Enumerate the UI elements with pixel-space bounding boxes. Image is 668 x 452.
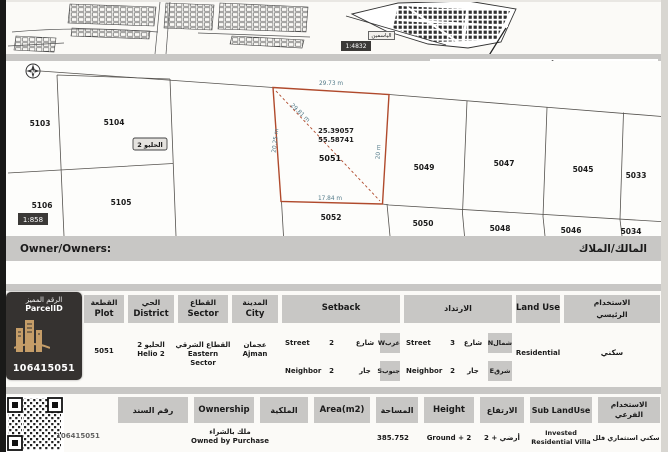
owner-label-en: Owner/Owners: xyxy=(20,243,111,255)
plot-label: 5046 xyxy=(561,226,582,235)
plot-demarcation-document: الياسمين 1:4832 موقع الأرض / Plot Demarc… xyxy=(0,0,668,452)
stamp-header-ar: الرقم المميز xyxy=(6,296,82,304)
stamp-header-en: ParcelID xyxy=(6,304,82,313)
landuse-value: Residential xyxy=(510,349,566,358)
table1-top-band xyxy=(6,284,661,291)
ownership-value-ar: ملك بالشراء xyxy=(140,428,320,437)
setback-e-neighbor-label: Neighbor xyxy=(406,361,446,381)
setback-w-neighbor-dir: جنوبS xyxy=(380,361,400,381)
subuse-header-ar-line1: الاستخدام xyxy=(611,400,647,410)
setback-e-street-ar: شارع xyxy=(461,333,485,353)
height-value-en: Ground + 2 xyxy=(424,434,474,443)
subuse-value-ar: سكني استثماري فلل xyxy=(586,434,666,443)
setback-w-street-dir: غربW xyxy=(380,333,400,353)
plot-label: 5034 xyxy=(621,227,642,236)
parcel-id-stamp: الرقم المميز ParcelID 106415051 xyxy=(6,292,82,380)
col-city-header: المدينة City xyxy=(232,295,278,323)
col-deed-header: رقم السند xyxy=(118,397,188,423)
setback-w-neighbor-ar: جار xyxy=(352,361,378,381)
ownership-value: ملك بالشراء Owned by Purchase xyxy=(140,428,320,446)
plot-label: 5104 xyxy=(104,118,125,127)
col-area-header-en: Area(m2) xyxy=(314,397,370,423)
setback-w-street-label: Street xyxy=(285,333,325,353)
survey-drawing: N 29.73 m 29.81 m 20.25 m 20 m 17.84 m 2… xyxy=(0,61,668,236)
dim-diagonal: 29.81 m xyxy=(289,103,311,124)
district-value-ar: الحليو 2 xyxy=(128,341,174,350)
landuse-value-text: Residential xyxy=(510,349,566,358)
setback-e-neighbor-value: 2 xyxy=(446,361,459,381)
setback-w-street-value: 2 xyxy=(325,333,338,353)
subuse-value-en-line2: Residential Villa xyxy=(530,438,592,447)
survey-scale-chip: 1:858 xyxy=(18,213,48,225)
survey-scale-label: 1:858 xyxy=(23,216,43,224)
setback-e-street-label: Street xyxy=(406,333,446,353)
building-blocks xyxy=(14,3,308,52)
longitude-label: 55.58741 xyxy=(318,136,354,144)
street-map-drawing xyxy=(8,2,328,54)
height-value-ar-text: أرضي + 2 xyxy=(480,434,524,443)
dim-right: 20 m xyxy=(375,144,382,160)
sector-header-en: Sector xyxy=(178,309,228,320)
scan-edge-left xyxy=(0,0,6,452)
plot-header-ar: القطعة xyxy=(84,297,124,309)
col-district-header: الحي District xyxy=(128,295,174,323)
plot-label: 5052 xyxy=(321,213,342,222)
subuse-value-en-line1: Invested xyxy=(530,429,592,438)
subuse-header-ar-line2: الفرعي xyxy=(615,410,643,420)
sector-value-ar: القطاع الشرقي xyxy=(174,341,232,350)
height-value-ar: أرضي + 2 xyxy=(480,434,524,443)
dim-bottom: 17.84 m xyxy=(318,196,342,202)
district-chip: الحليو 2 xyxy=(133,138,167,150)
plot-label: 5049 xyxy=(414,163,435,172)
ownership-value-en: Owned by Purchase xyxy=(140,437,320,446)
plot-value: 5051 xyxy=(84,347,124,356)
north-arrow-icon: N xyxy=(26,64,40,78)
col-area-header-ar: المساحة xyxy=(376,397,418,423)
plot-label: 5106 xyxy=(32,201,53,210)
sector-header-ar: القطاع xyxy=(178,297,228,309)
setback-header-label: Setback xyxy=(282,297,400,320)
district-value: الحليو 2 Helio 2 xyxy=(128,341,174,359)
owner-blank-row xyxy=(6,261,661,284)
mainuse-value: سكني xyxy=(564,348,660,357)
city-value-en: Ajman xyxy=(232,350,278,359)
col-subuse-header-en: Sub LandUse xyxy=(530,397,592,423)
col-landuse-header: Land Use xyxy=(516,295,560,323)
city-value: عجمان Ajman xyxy=(232,341,278,359)
dim-left: 20.25 m xyxy=(272,128,281,153)
latitude-label: 25.39057 xyxy=(318,127,354,135)
mainuse-header-line2: الرئيسي xyxy=(564,309,660,321)
plot-label: 5033 xyxy=(626,171,647,180)
scan-edge-top xyxy=(6,0,661,2)
ertedad-header-label: الارتداد xyxy=(404,297,512,320)
col-sector-header: القطاع Sector xyxy=(178,295,228,323)
setback-e-neighbor-ar: جار xyxy=(461,361,485,381)
owner-label-ar: المالك/الملاك xyxy=(579,243,647,255)
plot-header-en: Plot xyxy=(84,309,124,320)
plot-label: 5105 xyxy=(111,198,132,207)
city-header-ar: المدينة xyxy=(232,297,278,309)
col-subuse-header-ar: الاستخدام الفرعي xyxy=(598,397,660,423)
mainuse-header-line1: الاستخدام xyxy=(564,297,660,309)
table2-top-band xyxy=(6,387,661,394)
setback-w-street-ar: شارع xyxy=(352,333,378,353)
col-ownership-header-en: Ownership xyxy=(194,397,254,423)
district-value-en: Helio 2 xyxy=(128,350,174,359)
highlight-plot-number: 5051 xyxy=(319,154,342,163)
col-plot-header: القطعة Plot xyxy=(84,295,124,323)
sector-value: القطاع الشرقي Eastern Sector xyxy=(174,341,232,368)
setback-w-neighbor-label: Neighbor xyxy=(285,361,325,381)
city-value-ar: عجمان xyxy=(232,341,278,350)
col-mainuse-header: الاستخدام الرئيسي xyxy=(564,295,660,323)
height-value-en-text: Ground + 2 xyxy=(424,434,474,443)
col-height-header-en: Height xyxy=(424,397,474,423)
plot-number-value: 5051 xyxy=(84,347,124,356)
setback-e-street-dir: شمالN xyxy=(488,333,512,353)
plot-label: 5047 xyxy=(494,159,515,168)
plot-label: 5103 xyxy=(30,119,51,128)
city-header-en: City xyxy=(232,309,278,320)
col-ertedad-header: الارتداد xyxy=(404,295,512,323)
scan-edge-right xyxy=(661,0,668,452)
owner-band: Owner/Owners: المالك/الملاك xyxy=(6,236,661,261)
area-label-chip: الياسمين xyxy=(368,31,395,40)
subuse-value-ar-text: سكني استثماري فلل xyxy=(586,434,666,443)
inset-map-scale: 1:4832 xyxy=(341,41,371,51)
setback-e-street-value: 3 xyxy=(446,333,459,353)
plot-label: 5045 xyxy=(573,165,594,174)
plot-label: 5050 xyxy=(413,219,434,228)
landuse-header-label: Land Use xyxy=(516,297,560,320)
district-header-en: District xyxy=(128,309,174,320)
col-setback-header: Setback xyxy=(282,295,400,323)
north-label: N xyxy=(31,69,35,75)
building-logo-icon xyxy=(14,318,50,352)
col-height-header-ar: الارتفاع xyxy=(480,397,524,423)
setback-w-neighbor-value: 2 xyxy=(325,361,338,381)
dim-top: 29.73 m xyxy=(319,81,343,87)
district-chip-label: الحليو 2 xyxy=(137,141,163,149)
setback-e-neighbor-dir: شرقE xyxy=(488,361,512,381)
qr-footer-parcel-id: 106415051 xyxy=(56,432,104,440)
stamp-parcel-id: 106415051 xyxy=(6,363,82,374)
plot-label: 5048 xyxy=(490,224,511,233)
col-ownership-header-ar: الملكية xyxy=(260,397,308,423)
district-header-ar: الحي xyxy=(128,297,174,309)
sector-value-en: Eastern Sector xyxy=(174,350,232,368)
subuse-value-en: Invested Residential Villa xyxy=(530,429,592,447)
qr-code xyxy=(6,396,64,452)
mainuse-value-text: سكني xyxy=(564,348,660,357)
